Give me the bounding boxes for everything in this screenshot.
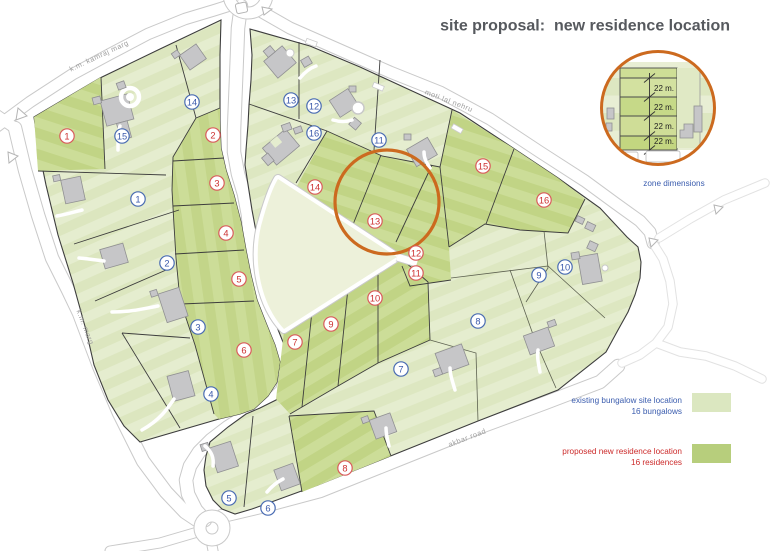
svg-text:2: 2 [164,259,169,269]
svg-text:12: 12 [309,102,319,112]
svg-text:5: 5 [226,494,231,504]
svg-text:16: 16 [539,196,549,206]
svg-text:13: 13 [286,96,296,106]
svg-text:zone dimensions: zone dimensions [643,179,704,188]
svg-text:22 m.: 22 m. [654,137,674,146]
svg-text:10: 10 [370,294,380,304]
svg-text:7: 7 [398,365,403,375]
svg-text:11: 11 [411,269,421,279]
svg-text:9: 9 [536,271,541,281]
svg-text:22 m.: 22 m. [654,122,674,131]
svg-text:15: 15 [117,132,127,142]
svg-text:3: 3 [195,323,200,333]
svg-text:22 m.: 22 m. [654,103,674,112]
svg-text:14: 14 [310,183,320,193]
svg-text:8: 8 [342,464,347,474]
svg-text:2: 2 [210,131,215,141]
svg-text:6: 6 [265,504,270,514]
svg-text:10: 10 [560,263,570,273]
svg-text:8: 8 [475,317,480,327]
svg-text:15: 15 [478,162,488,172]
svg-text:6: 6 [241,346,246,356]
svg-text:1: 1 [135,195,140,205]
svg-text:3: 3 [214,179,219,189]
svg-text:9: 9 [328,320,333,330]
svg-text:14: 14 [187,98,197,108]
svg-text:12: 12 [411,249,421,259]
svg-text:13: 13 [370,217,380,227]
svg-text:5: 5 [236,275,241,285]
svg-text:site proposal: new residence: site proposal: new residence location [440,18,730,35]
svg-text:4: 4 [223,229,228,239]
svg-text:existing bungalow site locatio: existing bungalow site location [571,396,682,405]
svg-text:11: 11 [374,136,384,146]
svg-text:16: 16 [309,129,319,139]
svg-text:1: 1 [64,132,69,142]
svg-text:4: 4 [208,390,213,400]
svg-text:proposed new residence locatio: proposed new residence location [562,447,682,456]
svg-text:16 bungalows: 16 bungalows [631,407,682,416]
svg-text:7: 7 [292,338,297,348]
svg-text:16 residences: 16 residences [631,458,682,467]
svg-text:22 m.: 22 m. [654,84,674,93]
